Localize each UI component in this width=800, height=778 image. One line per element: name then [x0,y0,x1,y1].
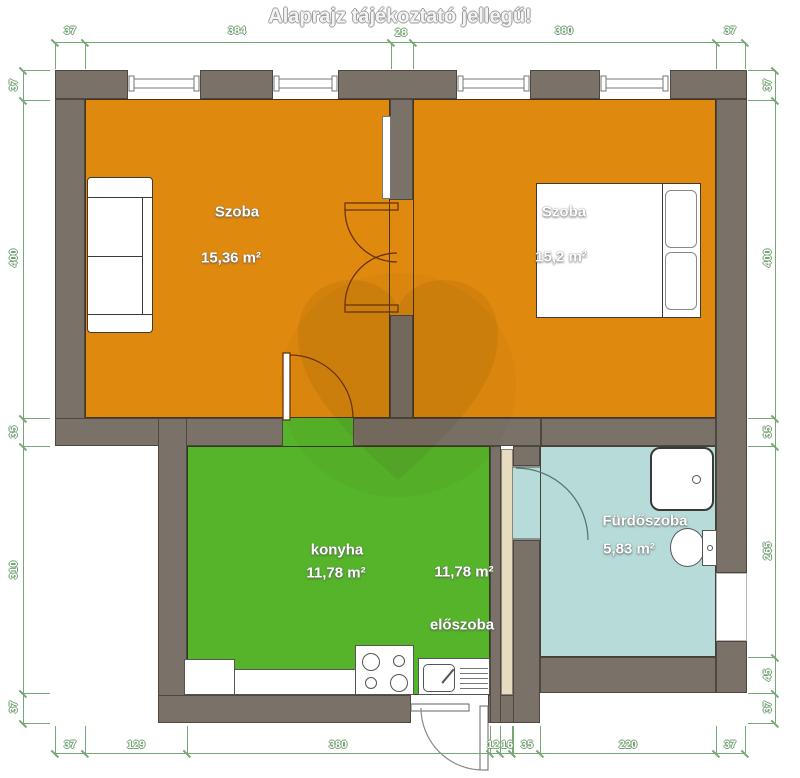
label-szoba2-name: Szoba [542,204,586,221]
dim-label: 45 [762,669,774,681]
dim-label: 35 [521,739,533,751]
dim-label: 37 [724,25,736,37]
label-furdoszoba-name: Fürdőszoba [603,513,688,530]
double-door [345,203,398,312]
dim-label: 380 [555,25,573,37]
dim-label: 400 [8,249,20,267]
dim-label: 28 [395,27,407,39]
door-entrance [411,704,488,770]
label-konyha-name: konyha [311,542,364,559]
label-szoba2-area: 15,2 m² [535,249,587,266]
floorplan-canvas: Szoba 15,36 m² Szoba 15,2 m² konyha 11,7… [0,0,800,778]
label-eloszoba-name: előszoba [430,617,494,634]
doors-windows-overlay [0,0,800,778]
window-1 [129,76,199,91]
dim-label: 35 [762,426,774,438]
label-konyha-area: 11,78 m² [306,565,365,582]
dim-label: 37 [762,79,774,91]
dim-label: 37 [64,739,76,751]
label-szoba1-area: 15,36 m² [201,250,261,267]
label-furdoszoba-area: 5,83 m² [603,541,655,558]
dim-label: 384 [228,25,246,37]
dim-label: 220 [619,739,637,751]
dim-label: 16 [501,739,513,751]
dim-label: 265 [762,542,774,560]
dim-label: 37 [64,25,76,37]
dim-label: 37 [8,79,20,91]
dim-label: 12 [487,739,499,751]
dim-label: 400 [762,249,774,267]
dim-label: 35 [8,426,20,438]
window-3 [458,76,529,91]
dim-label: 37 [724,739,736,751]
dim-label: 310 [8,561,20,579]
plan-title: Alaprajz tájékoztató jellegű! [268,6,531,29]
window-4 [601,76,668,91]
door-bathroom [513,467,588,540]
dim-label: 129 [127,739,145,751]
dim-label: 380 [329,739,347,751]
dim-label: 37 [8,701,20,713]
label-szoba1-name: Szoba [215,204,259,221]
door-szoba1-kitchen [283,353,353,420]
window-2 [274,76,337,91]
dim-label: 37 [762,701,774,713]
label-eloszoba-area: 11,78 m² [434,564,493,581]
